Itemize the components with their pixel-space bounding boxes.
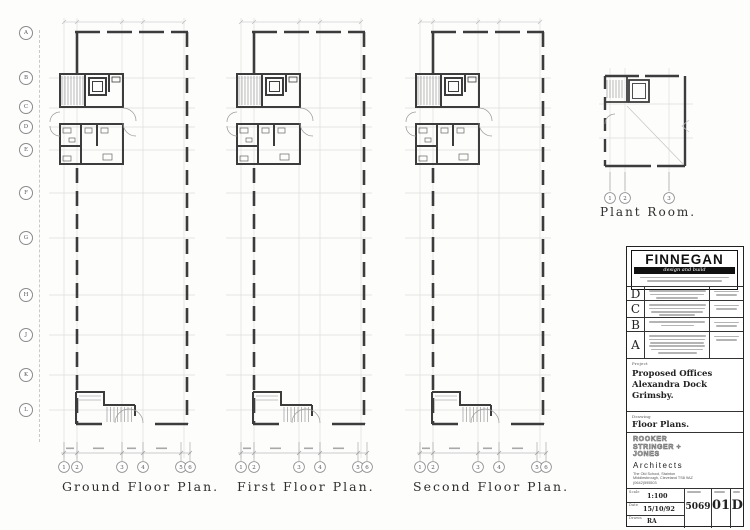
drawing-title-box: Drawing Floor Plans. bbox=[627, 411, 743, 432]
job-number-cell: 5069 bbox=[684, 489, 711, 528]
architects-address-line-3: (0642)595503 bbox=[633, 481, 737, 486]
contractor-name: FINNEGAN bbox=[632, 252, 737, 267]
architects-box: ROOKER STRINGER + JONES Architects The O… bbox=[627, 432, 743, 488]
revision-row: A bbox=[627, 331, 743, 358]
project-title: Proposed Offices Alexandra Dock Grimsby. bbox=[632, 369, 738, 402]
project-line-3: Grimsby. bbox=[632, 391, 738, 402]
grid-connectors bbox=[610, 172, 669, 191]
info-strip: Scale 1:100 Date 15/10/92 Drawn RA 5069 … bbox=[627, 488, 743, 527]
project-box: Project Proposed Offices Alexandra Dock … bbox=[627, 358, 743, 411]
grid-row-label: E bbox=[24, 147, 28, 153]
grid-row-label: J bbox=[25, 332, 27, 338]
revision-signoff-illegible bbox=[710, 301, 743, 317]
grid-row-bubble: J bbox=[19, 328, 33, 342]
grid-row-bubble: A bbox=[19, 26, 33, 40]
revision-letter: D bbox=[627, 287, 645, 300]
grid-row-label: B bbox=[24, 75, 28, 81]
drawn-label: Drawn bbox=[629, 516, 642, 520]
revision-row: B bbox=[627, 317, 743, 331]
scale-label: Scale bbox=[629, 490, 640, 494]
sheet-number: 01 bbox=[712, 498, 730, 513]
plant-room-plan: 1 2 3 bbox=[597, 68, 697, 218]
row-grid-dashed-line bbox=[39, 30, 40, 442]
grid-row-label: G bbox=[24, 235, 28, 241]
date-value: 15/10/92 bbox=[643, 505, 675, 513]
revision-letter: B bbox=[627, 318, 645, 331]
plant-lift-shaft bbox=[605, 76, 649, 102]
ground-floor-plan-label: Ground Floor Plan. bbox=[62, 479, 219, 494]
ground-floor-plan bbox=[45, 16, 197, 478]
grid-row-label: D bbox=[24, 124, 28, 130]
project-line-2: Alexandra Dock bbox=[632, 380, 738, 391]
revision-signoff-illegible bbox=[710, 287, 743, 300]
architects-address: The Old School, Stainton Middlesbrough, … bbox=[633, 472, 737, 486]
grid-row-label: C bbox=[24, 104, 28, 110]
drawn-value: RA bbox=[647, 518, 657, 525]
plant-stair-treads bbox=[607, 80, 622, 98]
revision-letter: A bbox=[627, 332, 645, 358]
grid-row-bubble: E bbox=[19, 143, 33, 157]
grid-row-bubble: L bbox=[19, 403, 33, 417]
grid-row-label: H bbox=[24, 292, 29, 298]
scale-cell: Scale 1:100 bbox=[627, 489, 684, 503]
revision-signoff-illegible bbox=[710, 332, 743, 358]
grid-row-label: A bbox=[24, 30, 28, 36]
second-floor-plan bbox=[401, 16, 553, 478]
plant-room-walls bbox=[605, 76, 685, 166]
title-block: FINNEGAN design and build D C bbox=[626, 246, 744, 527]
plant-grid-bubbles: 1 2 3 bbox=[605, 193, 675, 204]
revision-note-illegible bbox=[645, 318, 710, 331]
grid-row-bubble: K bbox=[19, 368, 33, 382]
drawing-title: Floor Plans. bbox=[632, 420, 738, 430]
sheet-number-cell: 01 bbox=[711, 489, 730, 528]
grid-row-bubble: B bbox=[19, 71, 33, 85]
architects-logo-line-3: JONES bbox=[633, 451, 737, 459]
project-field-label: Project bbox=[632, 361, 738, 366]
architects-logo-line-2: STRINGER + bbox=[633, 444, 737, 452]
contractor-address-illegible bbox=[632, 274, 737, 284]
second-floor-plan-label: Second Floor Plan. bbox=[413, 479, 569, 494]
plant-room-label: Plant Room. bbox=[600, 205, 696, 219]
architects-name: Architects bbox=[633, 461, 737, 470]
project-line-1: Proposed Offices bbox=[632, 369, 738, 380]
first-floor-plan-label: First Floor Plan. bbox=[237, 479, 375, 494]
drawing-sheet: 1 2 3 4 5 6 A B C D E F G H J K L Ground… bbox=[0, 0, 750, 530]
revision-value: D bbox=[731, 498, 744, 513]
grid-row-bubble: F bbox=[19, 186, 33, 200]
plant-grid-col-3: 3 bbox=[667, 196, 671, 202]
grid-row-bubble: H bbox=[19, 288, 33, 302]
date-cell: Date 15/10/92 bbox=[627, 502, 684, 516]
drawing-field-label: Drawing bbox=[632, 414, 738, 419]
plant-grid-col-2: 2 bbox=[623, 196, 627, 202]
revision-letter: C bbox=[627, 301, 645, 317]
revision-row: D bbox=[627, 286, 743, 300]
revision-note-illegible bbox=[645, 301, 710, 317]
revision-cell: D bbox=[730, 489, 744, 528]
grid-row-label: L bbox=[24, 407, 28, 413]
grid-row-label: F bbox=[24, 190, 28, 196]
drawn-cell: Drawn RA bbox=[627, 515, 684, 528]
architects-logo-line-1: ROOKER bbox=[633, 436, 737, 444]
revision-row: C bbox=[627, 300, 743, 317]
job-number: 5069 bbox=[685, 502, 711, 512]
date-label: Date bbox=[629, 503, 638, 507]
plant-grid-col-1: 1 bbox=[608, 196, 612, 202]
grid-row-label: K bbox=[24, 372, 28, 378]
scale-value: 1:100 bbox=[647, 492, 668, 500]
first-floor-plan bbox=[222, 16, 374, 478]
revision-note-illegible bbox=[645, 332, 710, 358]
revision-note-illegible bbox=[645, 287, 710, 300]
contractor-logo-box: FINNEGAN design and build bbox=[631, 250, 738, 290]
grid-row-bubble: D bbox=[19, 120, 33, 134]
roof-diagonal-line bbox=[627, 106, 689, 164]
revision-signoff-illegible bbox=[710, 318, 743, 331]
architects-logo: ROOKER STRINGER + JONES bbox=[633, 436, 737, 459]
grid-row-bubble: G bbox=[19, 231, 33, 245]
grid-row-bubble: C bbox=[19, 100, 33, 114]
contractor-tagline: design and build bbox=[634, 267, 735, 274]
